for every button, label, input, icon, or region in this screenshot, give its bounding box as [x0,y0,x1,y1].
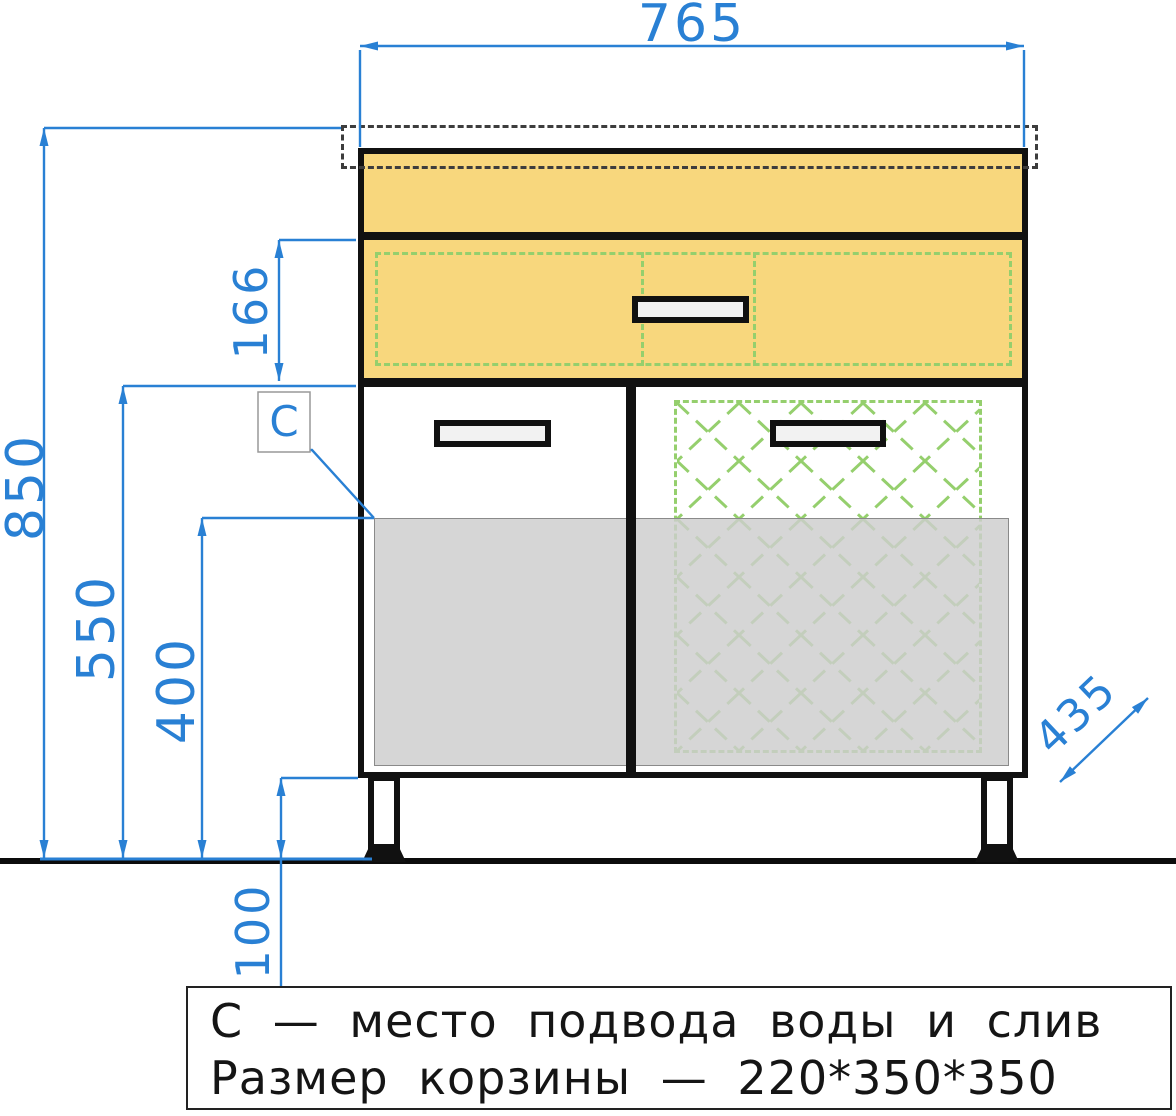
left-door-handle [434,420,551,447]
right-leg-foot [975,847,1019,862]
water-hookup-zone [374,518,1009,766]
dim-label-100: 100 [226,883,280,980]
marker-label-c: C [258,392,310,450]
countertop-dashed-outline [341,125,1038,169]
drawer-handle [632,296,749,323]
technical-drawing-canvas: 765 850 166 550 400 100 435 C С — место … [0,0,1176,1116]
left-leg-foot [362,847,406,862]
note-line-2: Размер корзины — 220*350*350 [210,1050,1170,1107]
dim-label-550: 550 [67,574,127,682]
dim-label-166: 166 [224,263,278,360]
dim-label-435: 435 [1025,663,1128,764]
drawer-dashed-divider-right [753,252,756,366]
left-leg [368,775,400,850]
dim-label-400: 400 [147,636,207,744]
right-leg [981,775,1013,850]
note-line-1: С — место подвода воды и слив [210,993,1170,1050]
dim-label-850: 850 [0,433,56,541]
door-divider [626,381,636,778]
right-door-handle [770,420,886,447]
dim-label-765: 765 [638,0,746,54]
note-box: С — место подвода воды и слив Размер кор… [186,986,1172,1110]
